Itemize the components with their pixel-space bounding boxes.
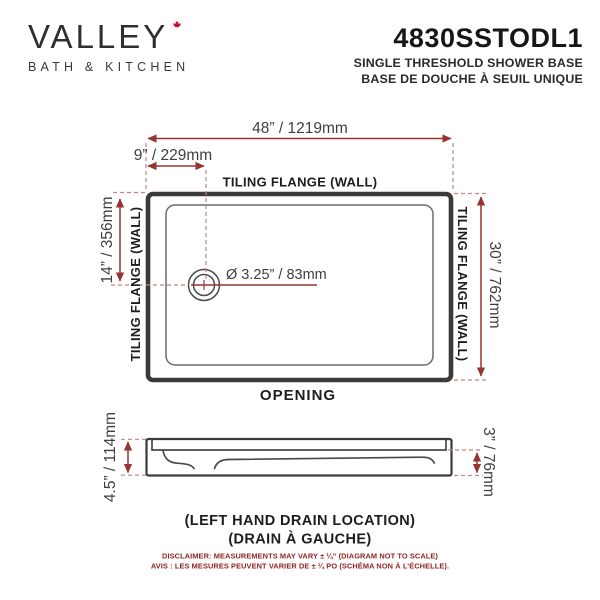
drain-location-caption-fr: (DRAIN À GAUCHE) — [228, 531, 371, 548]
drain-location-caption-en: (LEFT HAND DRAIN LOCATION) — [185, 513, 416, 529]
spec-sheet: VALLEY BATH & KITCHEN 4830SSTODL1 SINGLE… — [0, 0, 600, 600]
top-view: 48” / 1219mm 9” / 229mm 14” / 356mm 30” … — [99, 120, 503, 404]
disclaimer-fr: AVIS : LES MESURES PEUVENT VARIER DE ± ¼… — [151, 562, 449, 571]
opening-label: OPENING — [260, 387, 336, 404]
width-dimension-label: 48” / 1219mm — [252, 120, 348, 137]
threshold-dimension-label: 3” / 76mm — [480, 427, 497, 497]
depth-dimension-label: 30” / 762mm — [486, 241, 503, 328]
disclaimer-en: DISCLAIMER: MEASUREMENTS MAY VARY ± ¼” (… — [162, 552, 438, 561]
drain-diameter-label: Ø 3.25” / 83mm — [226, 267, 327, 283]
disclaimer-block: DISCLAIMER: MEASUREMENTS MAY VARY ± ¼” (… — [151, 552, 449, 571]
technical-drawing: 48” / 1219mm 9” / 229mm 14” / 356mm 30” … — [0, 0, 600, 600]
drain-from-top-dimension-label: 14” / 356mm — [99, 196, 116, 283]
drain-offset-dimension-label: 9” / 229mm — [134, 147, 212, 164]
height-dimension-label: 4.5” / 114mm — [102, 412, 119, 502]
flange-label-top: TILING FLANGE (WALL) — [223, 175, 378, 190]
flange-label-right: TILING FLANGE (WALL) — [455, 207, 470, 362]
side-view: 4.5” / 114mm 3” / 76mm (LEFT HAND DRAIN … — [102, 412, 497, 548]
flange-label-left: TILING FLANGE (WALL) — [128, 207, 143, 362]
